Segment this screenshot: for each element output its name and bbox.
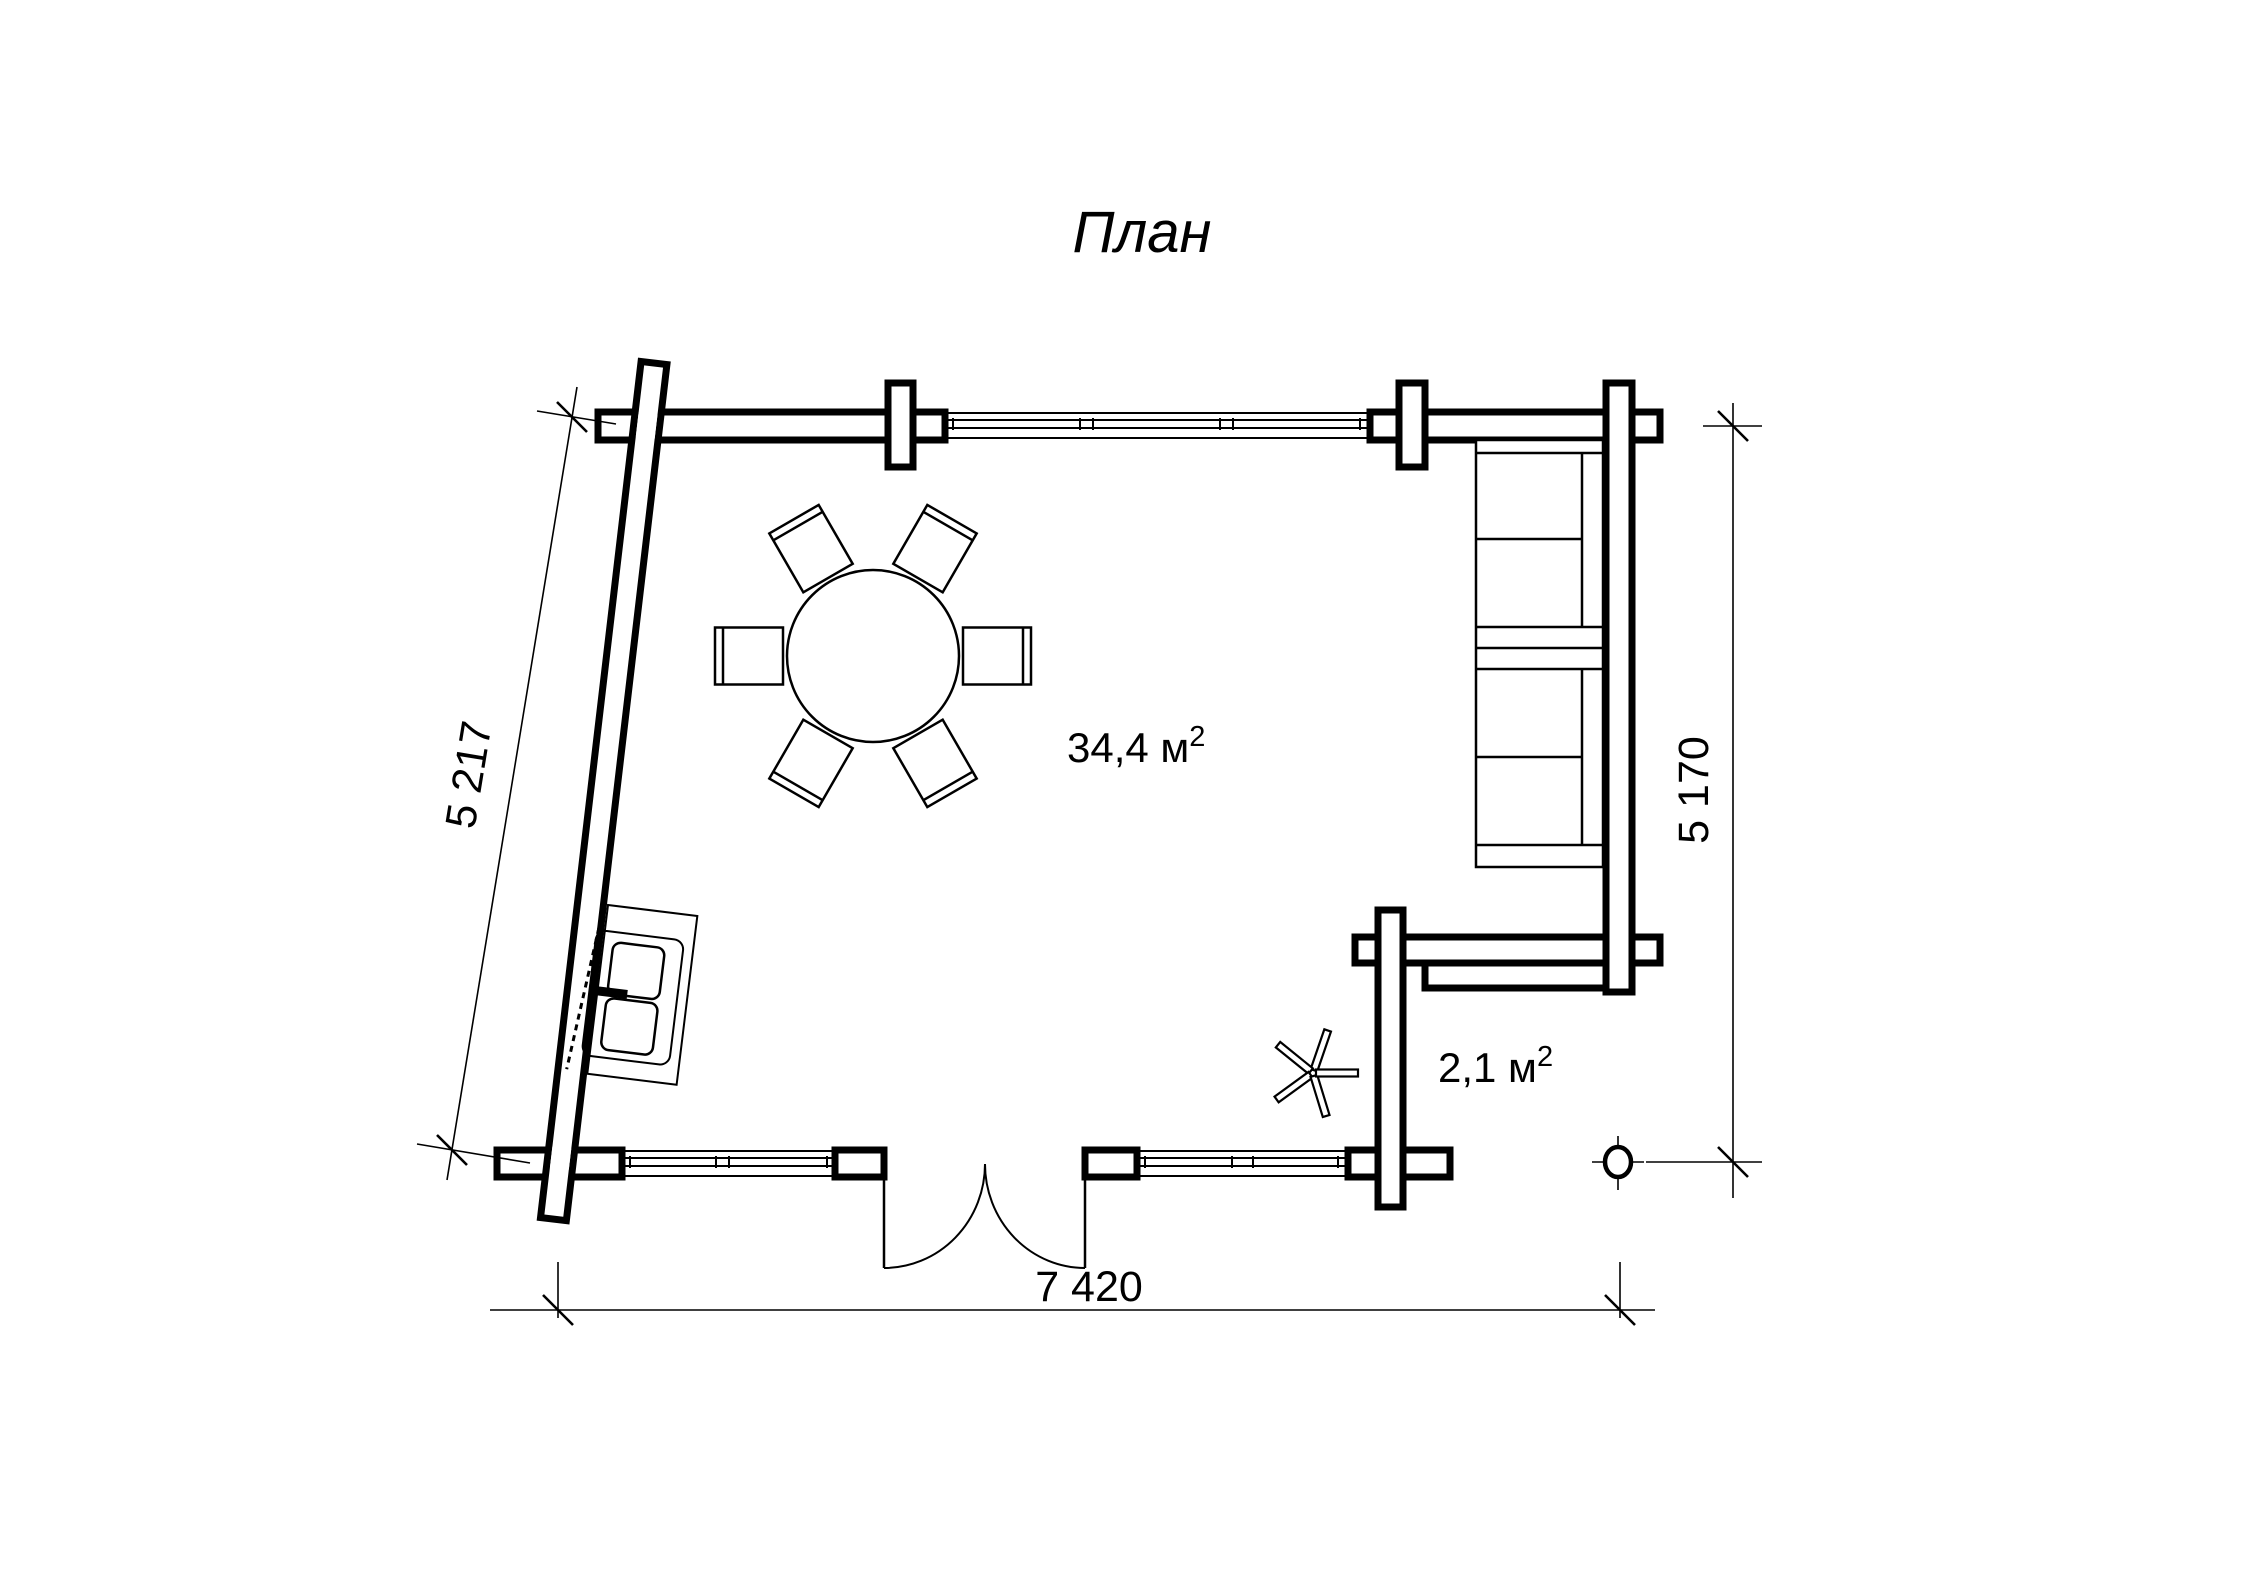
floor-plan-drawing: План xyxy=(0,0,2245,1587)
door-swing-arc-left xyxy=(884,1164,985,1268)
ceiling-fan xyxy=(1275,1029,1358,1117)
chair xyxy=(963,628,1031,685)
door-swing-arc-right xyxy=(985,1164,1085,1268)
dining-set xyxy=(715,505,1031,807)
entrance-double-door xyxy=(884,1153,1085,1268)
porch-area-label: 2,1 м2 xyxy=(1438,1041,1553,1091)
dimension-bottom: 7 420 xyxy=(490,1262,1655,1325)
page-title: План xyxy=(1073,200,1212,265)
window-top xyxy=(945,413,1370,438)
dining-table xyxy=(787,570,959,742)
superscript: 2 xyxy=(1189,721,1205,753)
door-pier-left xyxy=(835,1150,884,1177)
dimension-right: 5 170 xyxy=(1646,403,1762,1198)
wall-porch-top-lower-log xyxy=(1425,963,1606,988)
dimension-bottom-value: 7 420 xyxy=(1035,1263,1143,1311)
window-bottom-left xyxy=(622,1151,835,1176)
window-bottom-right xyxy=(1137,1151,1348,1176)
chair xyxy=(715,628,783,685)
floor-plan-page: План xyxy=(0,0,2245,1587)
dimension-left-value: 5 217 xyxy=(437,718,502,832)
wall-right xyxy=(1606,383,1632,992)
porch-post xyxy=(1592,1136,1644,1190)
sofa xyxy=(1476,440,1603,867)
dimension-right-value: 5 170 xyxy=(1670,736,1718,844)
superscript: 2 xyxy=(1537,1041,1553,1073)
door-pier-right xyxy=(1085,1150,1137,1177)
main-room-area-label: 34,4 м2 xyxy=(1067,721,1205,771)
